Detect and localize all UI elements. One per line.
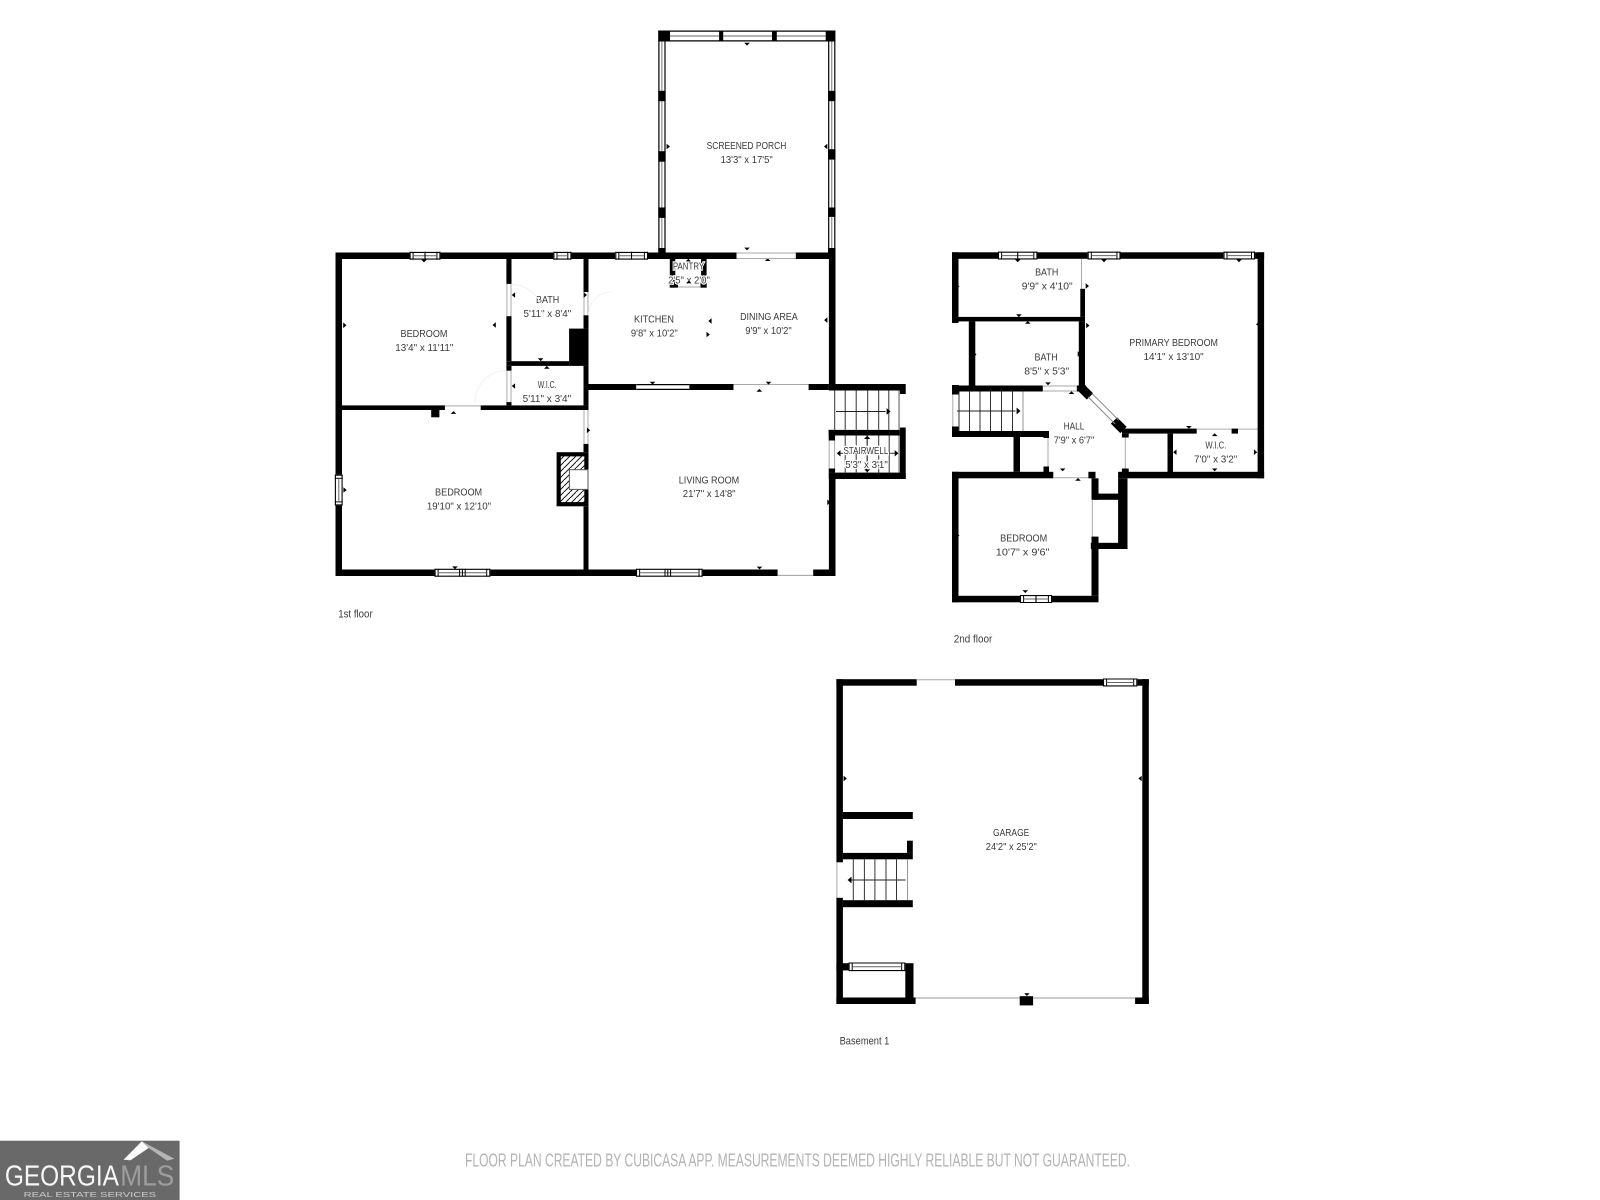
- svg-text:7'9" x 6'7": 7'9" x 6'7": [1054, 435, 1095, 447]
- svg-text:24'2" x 25'2": 24'2" x 25'2": [986, 841, 1037, 853]
- svg-text:PANTRY: PANTRY: [673, 261, 704, 273]
- svg-text:HALL: HALL: [1064, 421, 1085, 433]
- svg-text:DINING AREA: DINING AREA: [740, 311, 798, 323]
- svg-text:BATH: BATH: [1035, 352, 1058, 364]
- svg-text:13'4" x 11'11": 13'4" x 11'11": [395, 342, 453, 354]
- svg-text:BATH: BATH: [1035, 267, 1058, 279]
- svg-text:SCREENED PORCH: SCREENED PORCH: [707, 140, 787, 152]
- svg-text:2'5" x 2'0": 2'5" x 2'0": [668, 275, 710, 287]
- svg-text:BEDROOM: BEDROOM: [435, 486, 482, 498]
- svg-text:LIVING ROOM: LIVING ROOM: [679, 474, 740, 486]
- svg-text:KITCHEN: KITCHEN: [634, 314, 674, 326]
- svg-text:14'1" x 13'10": 14'1" x 13'10": [1144, 351, 1204, 363]
- svg-text:5'11" x 3'4": 5'11" x 3'4": [523, 393, 572, 405]
- svg-text:5'3" x 3'1": 5'3" x 3'1": [845, 459, 888, 471]
- svg-text:10'7" x 9'6": 10'7" x 9'6": [996, 547, 1050, 559]
- svg-text:9'8" x 10'2": 9'8" x 10'2": [631, 328, 678, 340]
- svg-text:2nd floor: 2nd floor: [954, 633, 993, 645]
- svg-text:5'11" x 8'4": 5'11" x 8'4": [524, 308, 572, 320]
- svg-text:REAL ESTATE SERVICES: REAL ESTATE SERVICES: [24, 1190, 157, 1199]
- svg-text:W.I.C.: W.I.C.: [538, 379, 557, 391]
- svg-text:19'10" x 12'10": 19'10" x 12'10": [427, 500, 492, 512]
- svg-text:1st floor: 1st floor: [338, 608, 373, 620]
- svg-text:BEDROOM: BEDROOM: [401, 328, 448, 340]
- svg-text:9'9" x 10'2": 9'9" x 10'2": [745, 325, 792, 337]
- svg-text:9'9" x 4'10": 9'9" x 4'10": [1022, 281, 1073, 293]
- svg-text:W.I.C.: W.I.C.: [1205, 439, 1226, 451]
- svg-text:STAIRWELL: STAIRWELL: [843, 445, 888, 457]
- svg-text:13'3" x 17'5": 13'3" x 17'5": [721, 154, 773, 166]
- svg-text:Basement 1: Basement 1: [840, 1036, 890, 1048]
- svg-text:21'7" x 14'8": 21'7" x 14'8": [683, 488, 736, 500]
- svg-text:BATH: BATH: [536, 294, 559, 306]
- svg-text:FLOOR PLAN CREATED BY CUBICASA: FLOOR PLAN CREATED BY CUBICASA APP. MEAS…: [465, 1150, 1130, 1171]
- svg-text:GEORGIA: GEORGIA: [5, 1161, 120, 1193]
- svg-text:GARAGE: GARAGE: [993, 827, 1029, 839]
- svg-text:BEDROOM: BEDROOM: [1000, 533, 1047, 545]
- svg-text:7'0" x 3'2": 7'0" x 3'2": [1194, 453, 1238, 465]
- svg-text:MLS: MLS: [120, 1161, 174, 1193]
- svg-text:8'5" x 5'3": 8'5" x 5'3": [1024, 366, 1069, 378]
- svg-text:PRIMARY BEDROOM: PRIMARY BEDROOM: [1129, 337, 1218, 349]
